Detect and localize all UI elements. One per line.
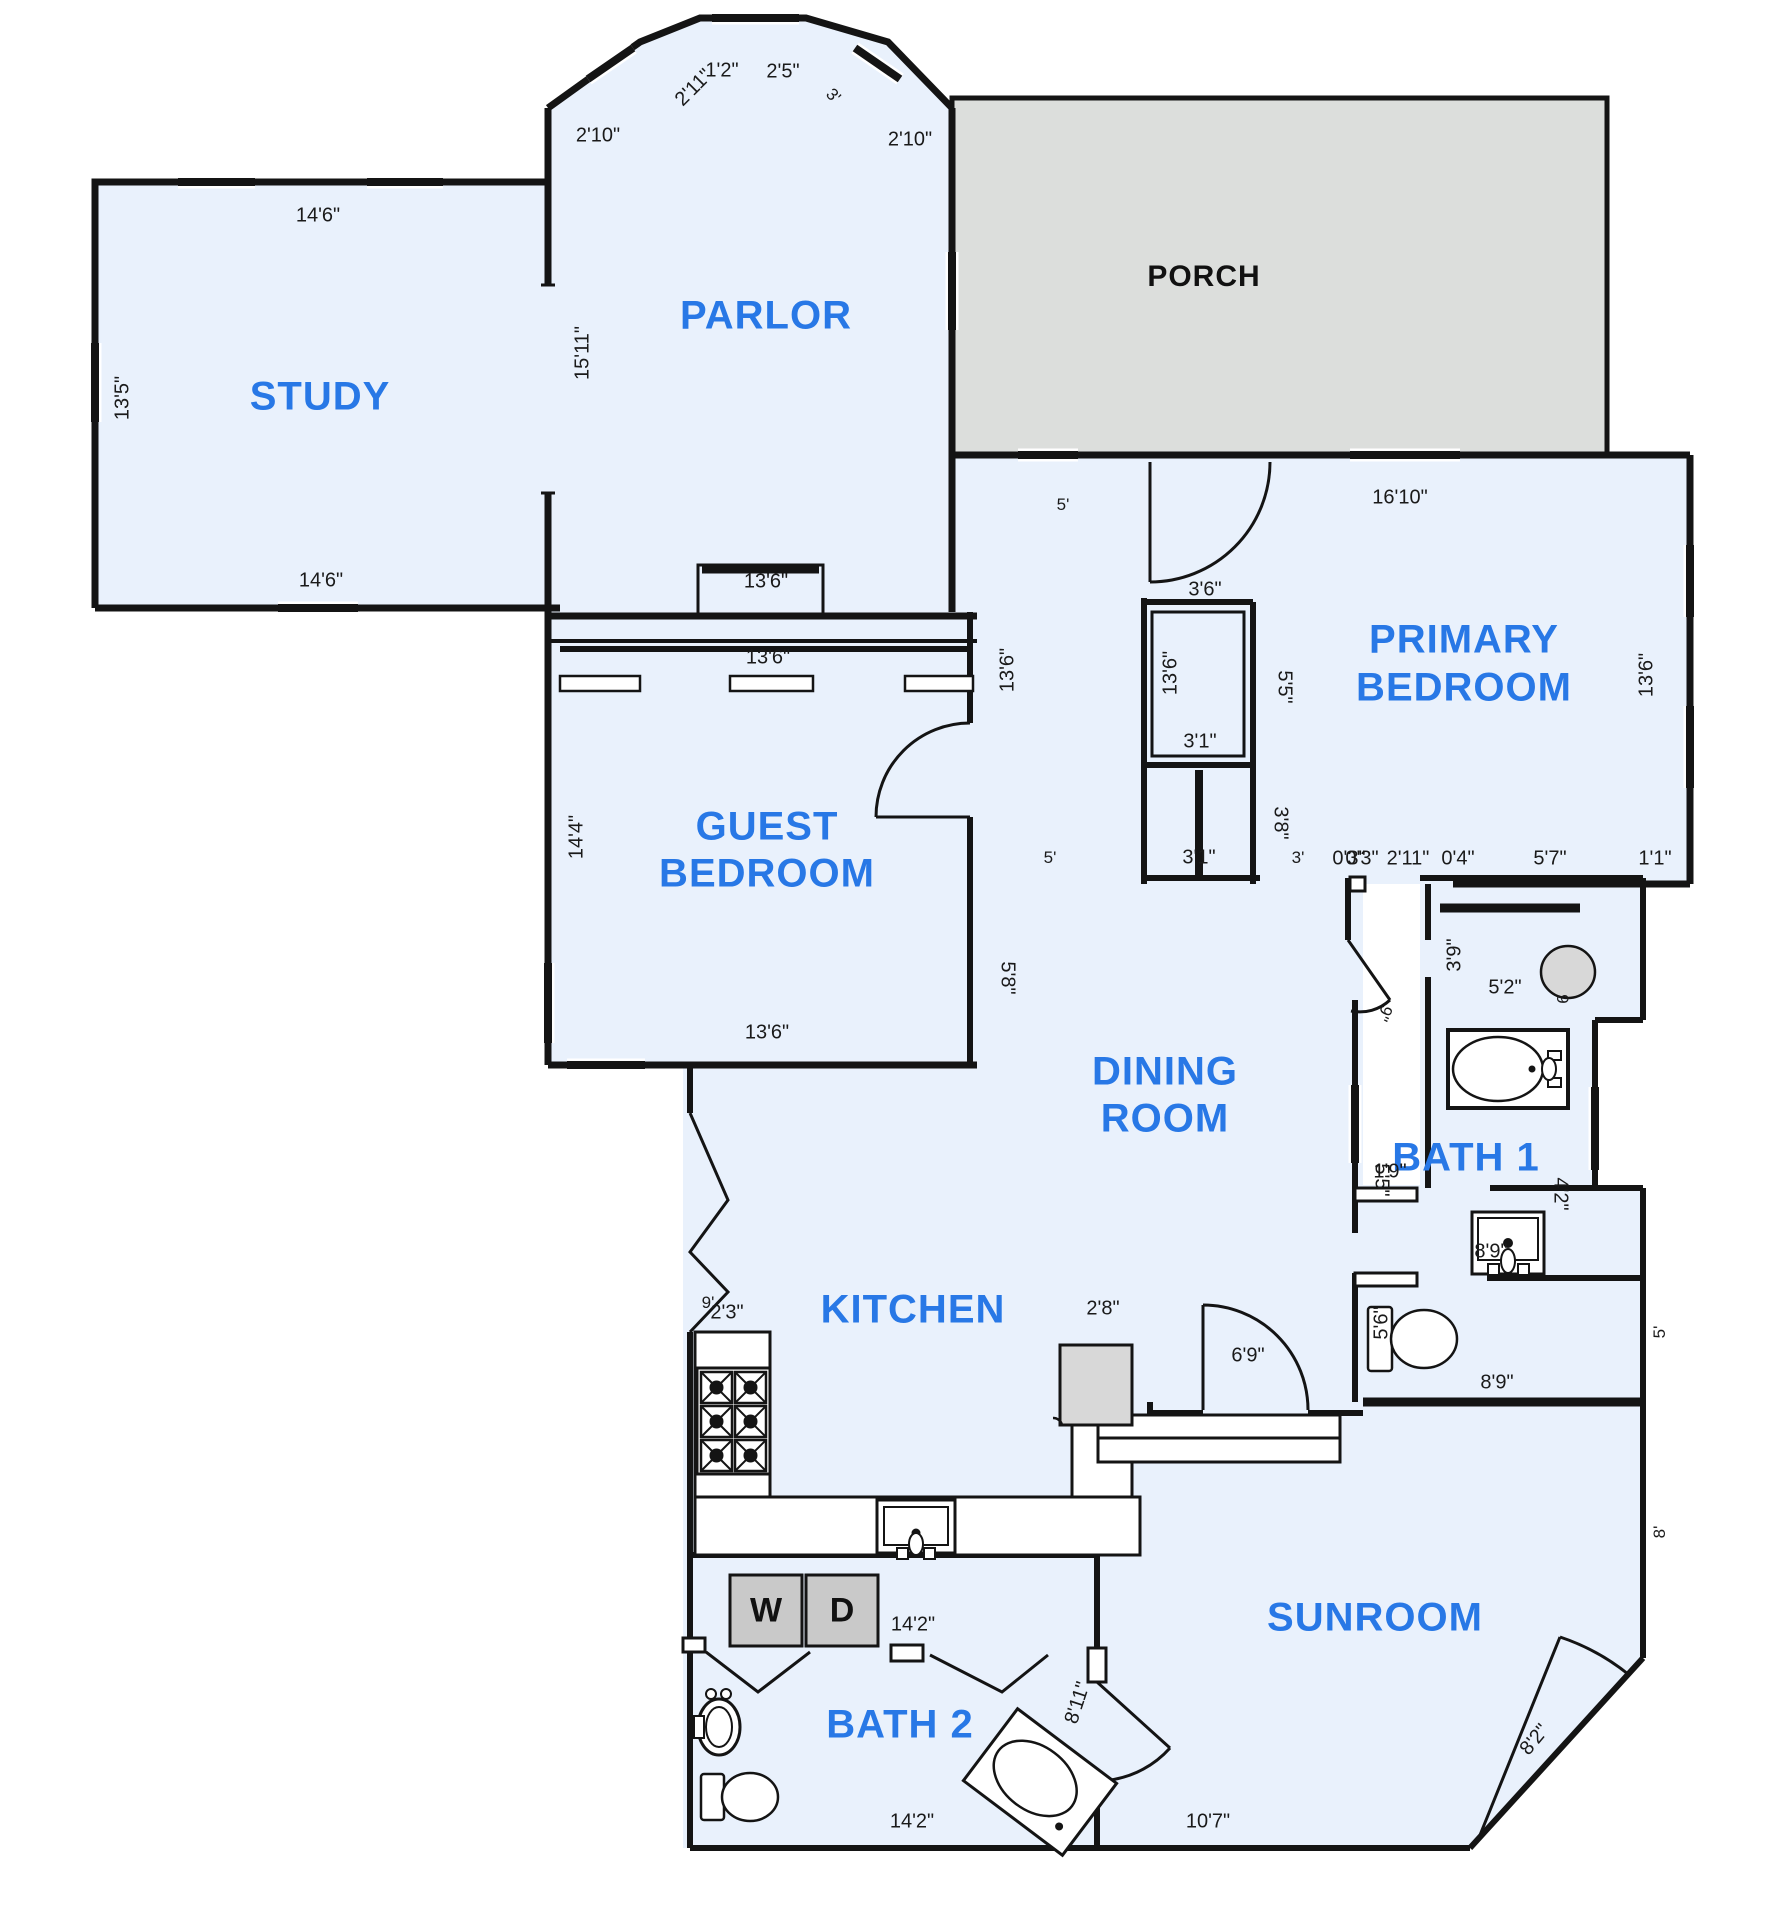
dimension-label: 13'6" bbox=[746, 647, 790, 670]
dimension-label: 0'3" bbox=[1345, 848, 1378, 871]
dimension-label: 13'6" bbox=[1160, 651, 1183, 695]
dryer-label: D bbox=[830, 1592, 855, 1631]
dimension-label: 2'8" bbox=[1086, 1298, 1119, 1321]
bathtub-icon bbox=[1448, 1030, 1568, 1108]
dimension-label: 4'2" bbox=[1549, 1177, 1572, 1210]
dimension-label: 6'9" bbox=[1231, 1345, 1264, 1368]
dimension-label: 3'6" bbox=[1188, 579, 1221, 602]
dimension-label: 2'11" bbox=[1387, 848, 1430, 871]
dimension-label: 14'6" bbox=[299, 570, 343, 593]
room-label-primary-bedroom-1: PRIMARY bbox=[1369, 618, 1559, 663]
bath2-door-leaf bbox=[891, 1645, 923, 1661]
dimension-label: 5'2" bbox=[1488, 977, 1521, 1000]
room-label-sunroom: SUNROOM bbox=[1267, 1596, 1483, 1641]
dimension-label: 8'9" bbox=[1480, 1372, 1513, 1395]
room-label-bath-2: BATH 2 bbox=[826, 1703, 973, 1748]
washer-label: W bbox=[750, 1592, 782, 1631]
room-label-study: STUDY bbox=[250, 375, 391, 420]
bath2-toilet-icon bbox=[701, 1773, 778, 1821]
dimension-label: 13'6" bbox=[997, 648, 1020, 692]
dimension-label: 8'9" bbox=[1474, 1241, 1507, 1264]
dimension-label: 1'2" bbox=[705, 60, 738, 83]
dimension-label: 16'10" bbox=[1372, 487, 1427, 510]
dimension-label: 14'2" bbox=[890, 1811, 934, 1834]
dimension-label: 15'11" bbox=[572, 326, 595, 380]
dimension-label: 5'8" bbox=[996, 961, 1019, 994]
dimension-label: 8' bbox=[1650, 1526, 1670, 1539]
kitchen-sink-icon bbox=[877, 1500, 955, 1559]
room-label-dining-room-1: DINING bbox=[1092, 1050, 1238, 1095]
dimension-label: 5'5" bbox=[1273, 670, 1296, 703]
dimension-label: 2'10" bbox=[576, 125, 620, 148]
dimension-label: 13'6" bbox=[1636, 653, 1659, 697]
dimension-label: 3'1" bbox=[1183, 731, 1216, 754]
dimension-label: 14'6" bbox=[296, 205, 340, 228]
dimension-label: 3'8" bbox=[1269, 806, 1292, 839]
floor-fills bbox=[95, 18, 1690, 1848]
dimension-label: 1'1" bbox=[1638, 848, 1671, 871]
floor-plan-drawing bbox=[0, 0, 1766, 1920]
guest-closet-panels bbox=[560, 676, 973, 691]
dimension-label: 0'4" bbox=[1441, 848, 1474, 871]
dimension-label: 5' bbox=[1650, 1326, 1670, 1339]
dimension-label: 5' bbox=[1057, 495, 1070, 515]
dimension-label: 14'2" bbox=[891, 1614, 935, 1637]
dimension-label: 14'4" bbox=[566, 815, 589, 859]
fridge-icon bbox=[1053, 1345, 1132, 1425]
dimension-label: 3'1" bbox=[1182, 847, 1215, 870]
room-label-guest-bedroom-1: GUEST bbox=[696, 805, 839, 850]
room-label-guest-bedroom-2: BEDROOM bbox=[659, 852, 875, 897]
room-label-porch: PORCH bbox=[1147, 260, 1260, 294]
dimension-label: 5' bbox=[1044, 848, 1057, 868]
dimension-label: 9 bbox=[1552, 994, 1572, 1003]
bath1-basin-icon bbox=[1541, 946, 1595, 998]
floor-plan: STUDYPARLORPRIMARYBEDROOMGUESTBEDROOMDIN… bbox=[0, 0, 1766, 1920]
dimension-label: 13'5" bbox=[112, 376, 135, 420]
dimension-label: 5'7" bbox=[1533, 848, 1566, 871]
room-label-bath-1: BATH 1 bbox=[1392, 1136, 1539, 1181]
dimension-label: 3' bbox=[1292, 848, 1305, 868]
dimension-label: 10'7" bbox=[1186, 1811, 1230, 1834]
dimension-label: 13'6" bbox=[745, 1022, 789, 1045]
stove-icon bbox=[697, 1368, 770, 1474]
dimension-label: 2'10" bbox=[888, 129, 932, 152]
room-label-parlor: PARLOR bbox=[680, 294, 852, 339]
room-label-primary-bedroom-2: BEDROOM bbox=[1356, 666, 1572, 711]
dimension-label: 13'6" bbox=[744, 571, 788, 594]
porch-area bbox=[952, 98, 1607, 455]
dimension-label: 2'3" bbox=[710, 1302, 743, 1325]
room-label-kitchen: KITCHEN bbox=[821, 1288, 1006, 1333]
dimension-label: 5'5" bbox=[1370, 1163, 1393, 1196]
room-label-dining-room-2: ROOM bbox=[1101, 1097, 1229, 1142]
dimension-label: 2'5" bbox=[766, 61, 799, 84]
dimension-label: 5'6" bbox=[1371, 1306, 1394, 1339]
dimension-label: 3'9" bbox=[1444, 938, 1467, 971]
